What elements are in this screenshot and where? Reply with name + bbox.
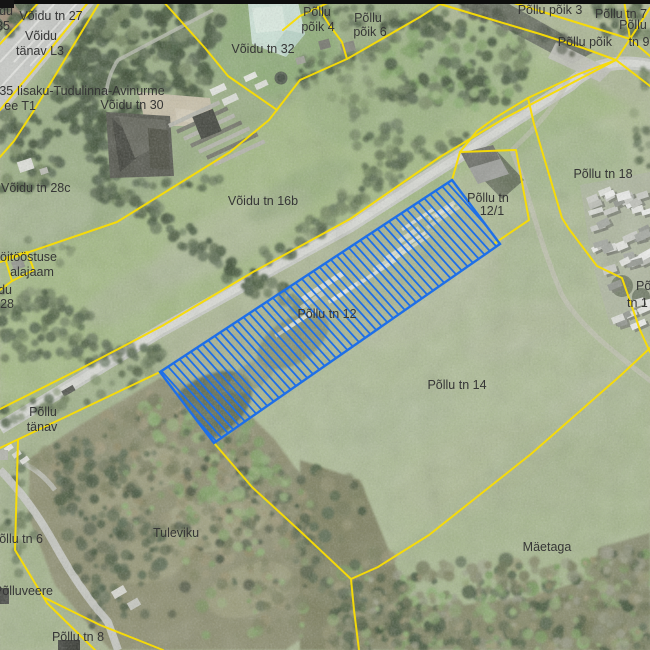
- svg-text:Mäetaga: Mäetaga: [523, 540, 572, 554]
- svg-text:põik 6: põik 6: [353, 25, 386, 39]
- svg-text:Põllu põik 3: Põllu põik 3: [518, 3, 583, 17]
- svg-text:Põllu: Põllu: [619, 18, 647, 32]
- svg-text:Võidu tn 32: Võidu tn 32: [231, 42, 294, 56]
- svg-text:põik 4: põik 4: [301, 20, 334, 34]
- svg-text:Võidu tn 16b: Võidu tn 16b: [228, 194, 298, 208]
- svg-text:tn 9: tn 9: [629, 35, 650, 49]
- svg-text:öitööstuse: öitööstuse: [0, 250, 57, 264]
- svg-text:tänav L3: tänav L3: [16, 44, 64, 58]
- svg-text:Võidu: Võidu: [25, 29, 57, 43]
- svg-text:Põllu tn 12: Põllu tn 12: [297, 307, 356, 321]
- svg-text:Põllu: Põllu: [354, 11, 382, 25]
- svg-text:12/1: 12/1: [480, 204, 504, 218]
- svg-text:Võidu tn 30: Võidu tn 30: [100, 98, 163, 112]
- svg-text:Põllu: Põllu: [303, 5, 331, 19]
- svg-text:35 Iisaku-Tudulinna-Avinurme: 35 Iisaku-Tudulinna-Avinurme: [0, 84, 165, 98]
- svg-text:Tuleviku: Tuleviku: [153, 526, 199, 540]
- svg-text:Võidu tn 27: Võidu tn 27: [19, 9, 82, 23]
- svg-text:Võidu tn 28c: Võidu tn 28c: [1, 181, 71, 195]
- svg-text:Põllu tn 14: Põllu tn 14: [427, 378, 486, 392]
- svg-text:35: 35: [0, 19, 10, 33]
- svg-text:tänav: tänav: [27, 420, 58, 434]
- svg-text:Põlluveere: Põlluveere: [0, 584, 53, 598]
- svg-text:Põllu põik: Põllu põik: [558, 35, 613, 49]
- svg-text:Põ: Põ: [636, 279, 650, 293]
- svg-text:Põllu tn 8: Põllu tn 8: [52, 630, 104, 644]
- svg-text:28: 28: [0, 297, 14, 311]
- svg-text:alajaam: alajaam: [10, 265, 54, 279]
- svg-text:du: du: [0, 283, 12, 297]
- svg-text:Põllu: Põllu: [29, 405, 57, 419]
- svg-text:Põllu tn 6: Põllu tn 6: [0, 532, 43, 546]
- svg-text:Põllu tn: Põllu tn: [467, 191, 509, 205]
- svg-text:Põllu tn 18: Põllu tn 18: [573, 167, 632, 181]
- svg-text:ee T1: ee T1: [4, 99, 36, 113]
- svg-text:tn 1: tn 1: [627, 296, 648, 310]
